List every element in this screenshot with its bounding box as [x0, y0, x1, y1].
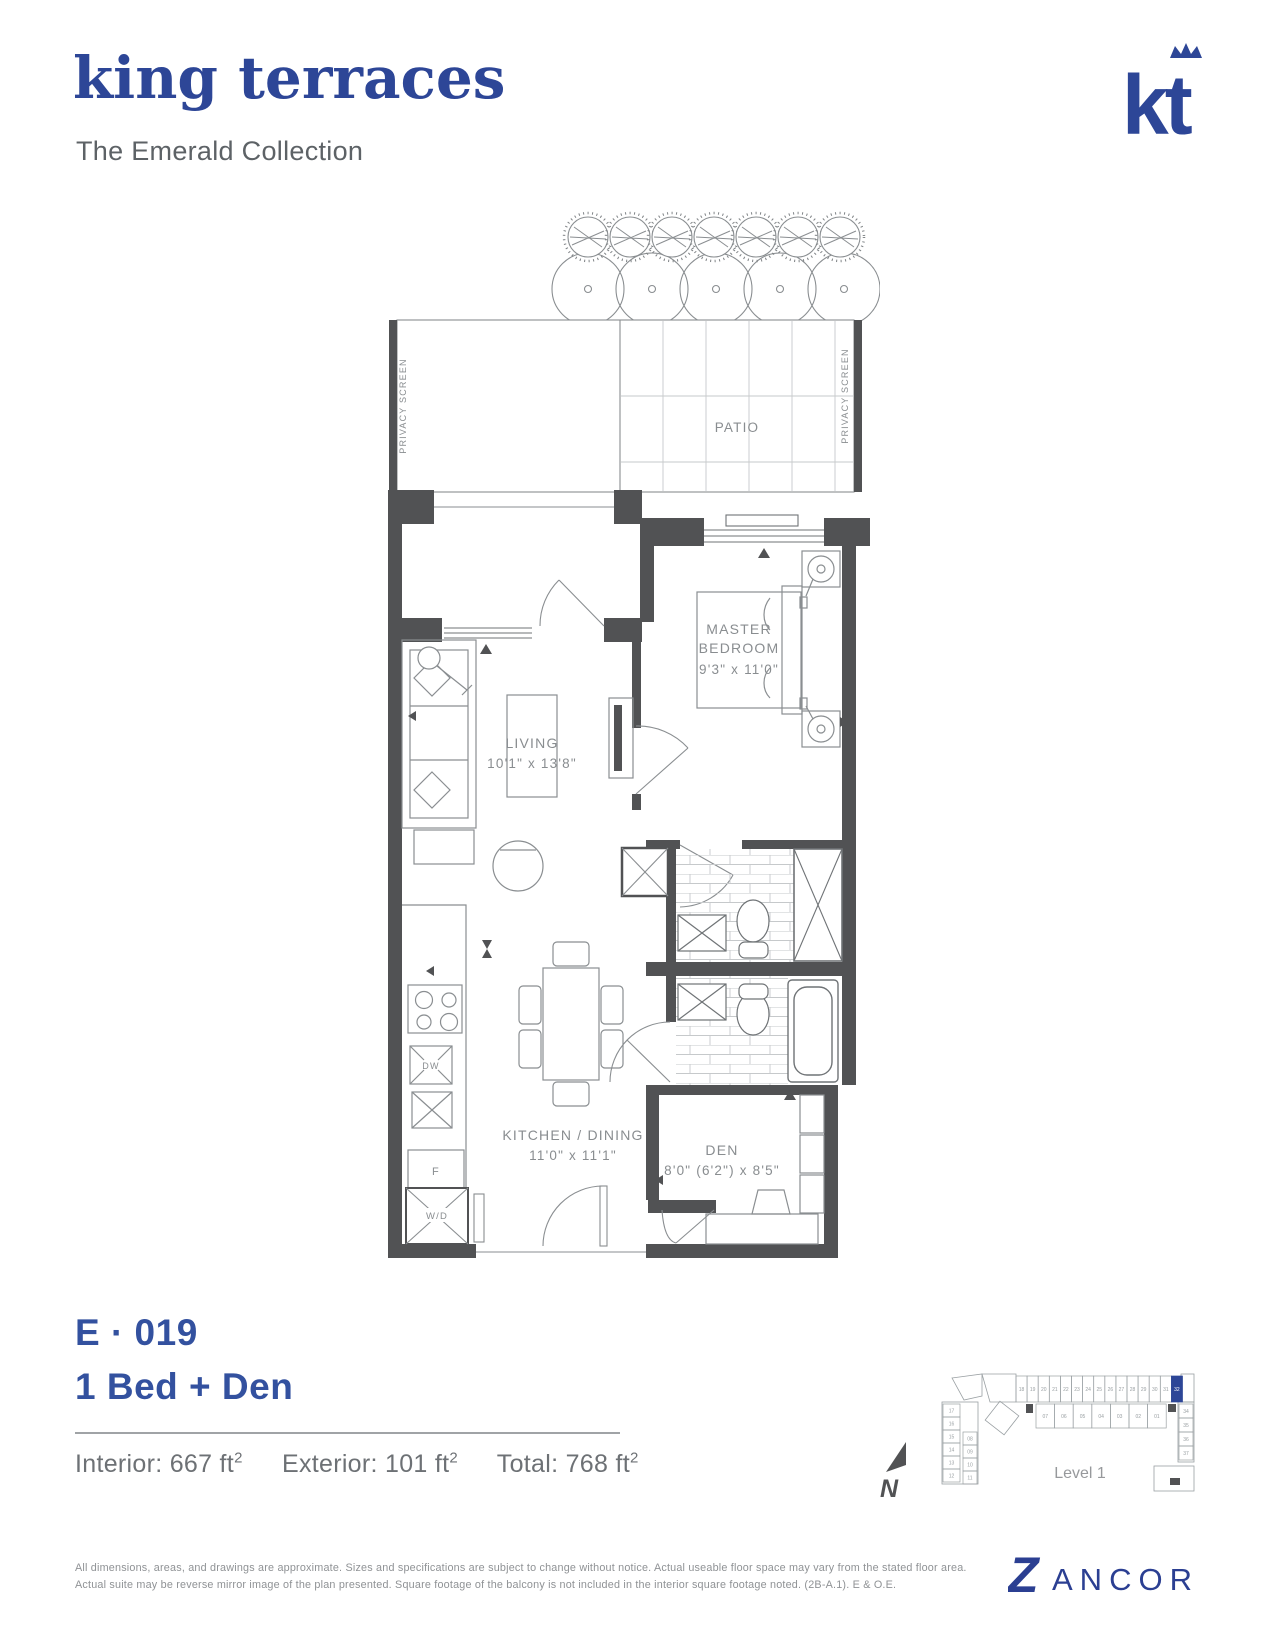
svg-text:06: 06: [1061, 1414, 1067, 1420]
svg-text:32: 32: [1174, 1387, 1180, 1393]
disclaimer-text: All dimensions, areas, and drawings are …: [75, 1560, 987, 1595]
svg-text:09: 09: [967, 1450, 973, 1456]
kt-logo-text: kt: [1122, 58, 1192, 145]
kt-logo: kt: [1118, 40, 1223, 145]
exterior-area: Exterior: 101 ft2: [282, 1450, 458, 1478]
north-arrow: N: [874, 1440, 920, 1502]
svg-text:26: 26: [1108, 1387, 1114, 1393]
svg-text:12: 12: [949, 1474, 955, 1480]
living-dims: 10'1" x 13'8": [487, 756, 577, 771]
divider-line: [75, 1432, 620, 1434]
svg-text:30: 30: [1152, 1387, 1158, 1393]
svg-text:29: 29: [1141, 1387, 1147, 1393]
svg-text:27: 27: [1119, 1387, 1125, 1393]
svg-text:37: 37: [1183, 1451, 1189, 1457]
north-label: N: [880, 1475, 899, 1502]
unit-code: E · 019: [75, 1312, 198, 1354]
den-label: DEN: [705, 1142, 738, 1158]
fridge-label: F: [432, 1166, 440, 1178]
svg-text:13: 13: [949, 1461, 955, 1467]
shower: [794, 849, 842, 961]
appliance-labels: DW F: [422, 1061, 440, 1178]
kitchen-label: KITCHEN / DINING: [502, 1127, 643, 1143]
privacy-screen-left-label: PRIVACY SCREEN: [398, 358, 408, 454]
zancor-rest: ANCOR: [1052, 1562, 1199, 1597]
zancor-logo: Z ANCOR: [1008, 1548, 1228, 1604]
svg-text:05: 05: [1080, 1414, 1086, 1420]
bathtub: [788, 980, 838, 1082]
floorplan-page: king terraces The Emerald Collection kt: [0, 0, 1275, 1650]
master-label-2: BEDROOM: [699, 640, 780, 656]
svg-text:36: 36: [1183, 1437, 1189, 1443]
crown-icon: [1170, 43, 1202, 58]
kitchen-dims: 11'0" x 11'1": [529, 1148, 617, 1163]
hall-closet: [622, 848, 668, 896]
washer-dryer: W/D: [406, 1188, 468, 1244]
svg-text:23: 23: [1074, 1387, 1080, 1393]
floorplan-drawing: PATIO PRIVACY SCREEN PRIVACY SCREEN: [360, 185, 880, 1275]
svg-text:28: 28: [1130, 1387, 1136, 1393]
svg-text:08: 08: [967, 1437, 973, 1443]
svg-text:17: 17: [949, 1409, 955, 1415]
area-summary: Interior: 667 ft2 Exterior: 101 ft2 Tota…: [75, 1450, 671, 1479]
svg-text:10: 10: [967, 1463, 973, 1469]
svg-text:35: 35: [1183, 1423, 1189, 1429]
keyplan: 1819202122232425262728293031320706050403…: [930, 1366, 1210, 1506]
svg-text:21: 21: [1052, 1387, 1058, 1393]
svg-text:19: 19: [1030, 1387, 1036, 1393]
living-label: LIVING: [505, 735, 558, 751]
svg-text:34: 34: [1183, 1409, 1189, 1415]
svg-text:16: 16: [949, 1422, 955, 1428]
master-dims: 9'3" x 11'0": [699, 662, 779, 677]
svg-text:02: 02: [1136, 1414, 1142, 1420]
keyplan-level-label: Level 1: [1054, 1465, 1106, 1482]
collection-subtitle: The Emerald Collection: [76, 136, 363, 167]
svg-text:01: 01: [1154, 1414, 1160, 1420]
svg-text:04: 04: [1098, 1414, 1104, 1420]
patio-label: PATIO: [715, 420, 760, 435]
svg-text:24: 24: [1085, 1387, 1091, 1393]
kitchen-appliances: [402, 905, 492, 1190]
svg-text:15: 15: [949, 1435, 955, 1441]
dining-table: [519, 942, 623, 1106]
total-area: Total: 768 ft2: [497, 1450, 639, 1478]
svg-text:11: 11: [967, 1476, 972, 1482]
page-title: king terraces: [73, 44, 505, 112]
interior-area: Interior: 667 ft2: [75, 1450, 243, 1478]
privacy-screen-right-label: PRIVACY SCREEN: [840, 348, 850, 444]
svg-text:31: 31: [1163, 1387, 1169, 1393]
svg-text:20: 20: [1041, 1387, 1047, 1393]
svg-text:22: 22: [1063, 1387, 1069, 1393]
north-arrow-icon: [886, 1442, 906, 1472]
zancor-z: Z: [1008, 1548, 1041, 1603]
washer-dryer-label: W/D: [426, 1211, 448, 1222]
patio-area: PATIO PRIVACY SCREEN PRIVACY SCREEN: [389, 320, 862, 507]
svg-text:03: 03: [1117, 1414, 1123, 1420]
dishwasher-label: DW: [422, 1061, 439, 1071]
den-dims: 8'0" (6'2") x 8'5": [664, 1163, 780, 1178]
svg-text:18: 18: [1019, 1387, 1025, 1393]
svg-text:14: 14: [949, 1448, 955, 1454]
landscaping-trees: [552, 213, 880, 325]
unit-type: 1 Bed + Den: [75, 1366, 293, 1408]
master-label-1: MASTER: [706, 621, 772, 637]
svg-text:25: 25: [1096, 1387, 1102, 1393]
svg-text:07: 07: [1043, 1414, 1049, 1420]
